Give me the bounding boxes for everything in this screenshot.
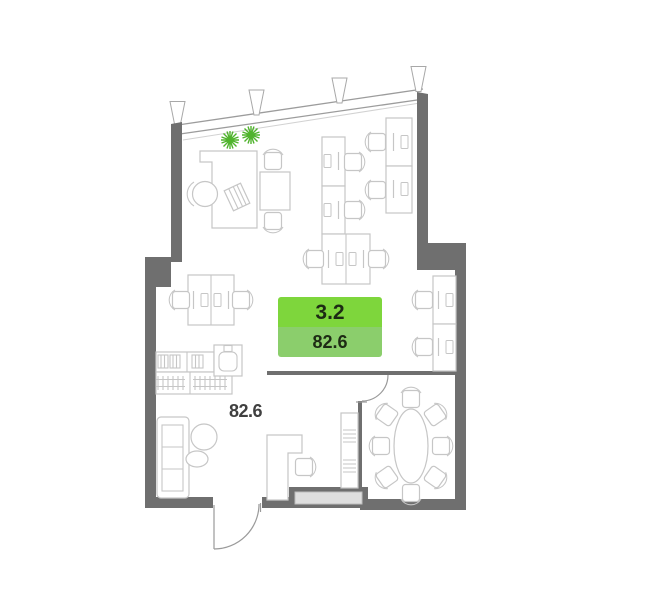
meeting-room-left-wall: [358, 401, 362, 500]
door-swing-icon: [214, 504, 259, 549]
side-table-chair: [263, 149, 283, 169]
exec-chair: [187, 182, 217, 207]
window-mullion-icon: [332, 78, 347, 103]
plant-icon: [242, 126, 260, 144]
floor-plan-viewport: 3.2 82.6 82.6: [0, 0, 654, 600]
meeting-chair: [369, 436, 389, 456]
sofa: [157, 417, 189, 498]
meeting-chair: [401, 485, 421, 505]
office-chair: [169, 290, 189, 310]
plant-icon: [221, 131, 239, 149]
entrance-door: [214, 503, 261, 549]
unit-area: 82.6: [278, 327, 382, 357]
window-mullion-icon: [249, 90, 264, 115]
office-chair: [345, 152, 365, 172]
sink: [214, 345, 242, 376]
unit-area-badge[interactable]: 3.2 82.6: [278, 297, 382, 357]
office-chair: [412, 290, 432, 310]
room-area-label: 82.6: [229, 401, 275, 422]
workstation-desk: [433, 276, 456, 371]
side-table: [260, 172, 290, 210]
office-chair: [365, 180, 385, 200]
side-table-chair: [263, 213, 283, 233]
workstation-desk: [386, 118, 412, 213]
office-chair: [412, 337, 432, 357]
meeting-chair: [372, 464, 400, 492]
office-chair: [296, 457, 316, 477]
office-chair: [345, 200, 365, 220]
kitchen-counter: [156, 345, 242, 394]
office-chair: [365, 132, 385, 152]
storage-cabinet: [341, 413, 358, 488]
door-swing-icon: [362, 375, 388, 401]
unit-number: 3.2: [278, 297, 382, 327]
meeting-chair: [422, 400, 450, 428]
meeting-table: [394, 409, 428, 483]
meeting-chair: [422, 464, 450, 492]
armchair: [186, 424, 217, 467]
office-chair: [369, 249, 389, 269]
meeting-chair: [372, 400, 400, 428]
office-chair: [303, 249, 323, 269]
window-mullion-icon: [411, 67, 426, 92]
office-chair: [233, 290, 253, 310]
workstation-desk: [188, 275, 234, 325]
meeting-room-door: [356, 375, 388, 402]
partition-wall: [267, 371, 455, 375]
meeting-chair: [433, 436, 453, 456]
meeting-chair: [401, 387, 421, 407]
window-mullion-icon: [170, 102, 185, 127]
threshold: [289, 487, 368, 508]
